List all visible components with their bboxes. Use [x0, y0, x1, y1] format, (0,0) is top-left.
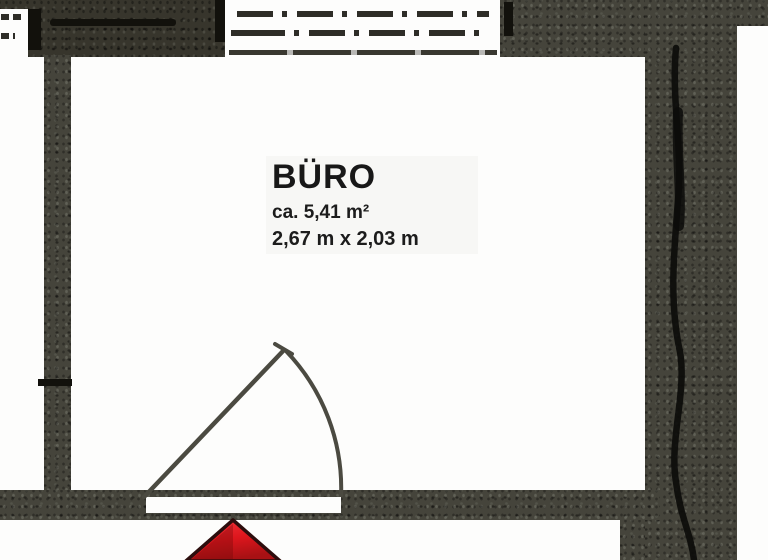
wall-top-left-segment — [28, 0, 225, 57]
room-area-label: ca. 5,41 m² — [272, 203, 472, 224]
window-glazing-line — [231, 30, 489, 36]
door-swing-arc — [286, 351, 341, 497]
wall-lintel-line — [50, 19, 176, 26]
window-top-left — [0, 9, 28, 55]
entrance-arrow-icon — [186, 520, 280, 560]
room-name-label: BÜRO — [272, 160, 472, 196]
door-leaf-line — [144, 350, 284, 497]
door-opening — [146, 497, 341, 513]
wall-right-foot — [620, 520, 645, 560]
window-glazing-line — [1, 14, 25, 20]
wall-right — [645, 0, 737, 560]
room-label-block: BÜRO ca. 5,41 m² 2,67 m x 2,03 m — [266, 156, 478, 254]
window-frame-mark — [215, 0, 225, 42]
room-dimensions-label: 2,67 m x 2,03 m — [272, 228, 472, 250]
window-sill-line — [229, 50, 497, 55]
window-frame-mark — [28, 9, 41, 50]
door-leaf-cap — [275, 344, 292, 354]
wall-left — [44, 55, 71, 520]
window-glazing-line — [1, 33, 15, 39]
wall-joint-mark — [38, 379, 72, 386]
window-frame-mark — [504, 2, 513, 36]
floorplan-canvas: BÜRO ca. 5,41 m² 2,67 m x 2,03 m — [0, 0, 768, 560]
window-top-center — [225, 4, 500, 57]
corridor-right-sliver — [737, 26, 768, 560]
wall-top-corner — [737, 0, 768, 26]
window-glazing-line — [237, 11, 489, 17]
wall-top-edge-left — [0, 0, 28, 9]
